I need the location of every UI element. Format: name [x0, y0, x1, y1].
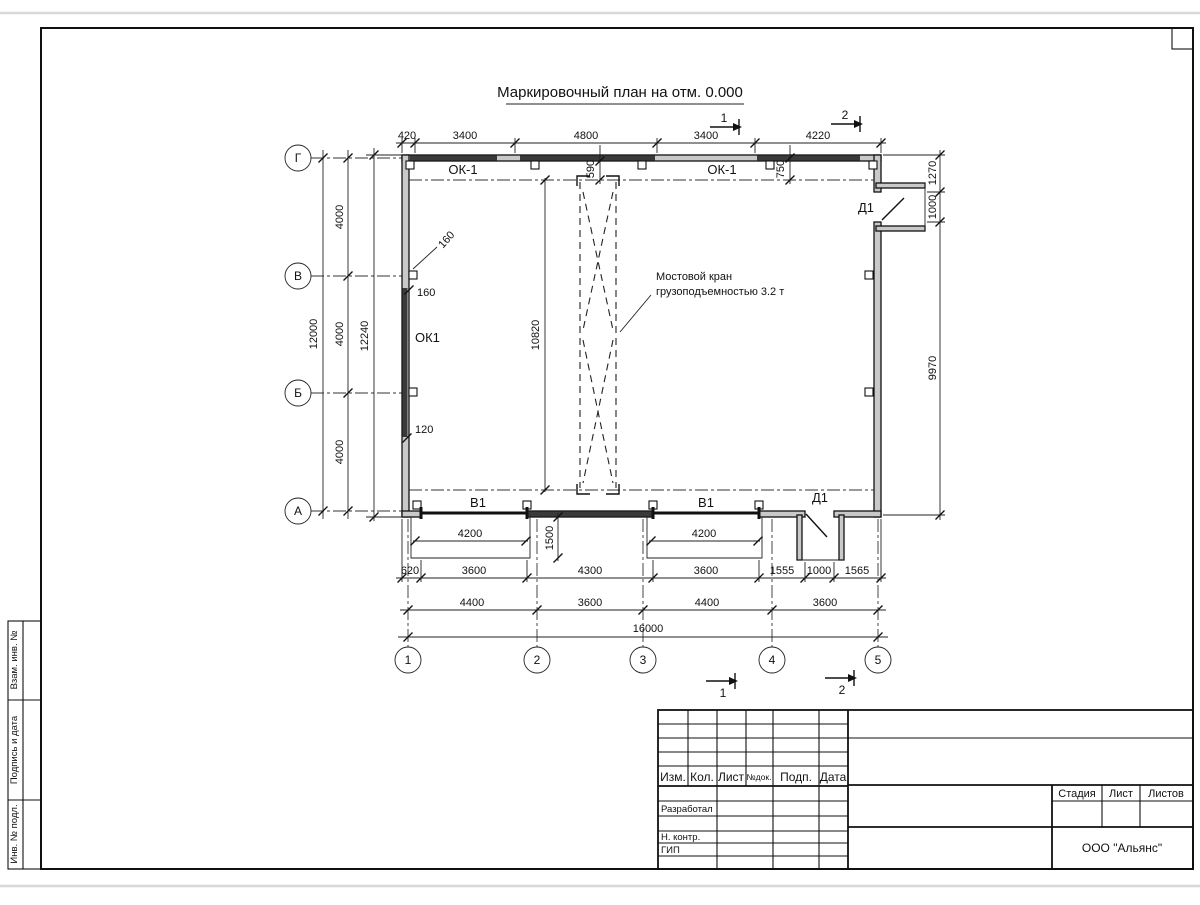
door-swing: [882, 198, 904, 220]
axis-label-5: 5: [875, 653, 882, 667]
dim-b2-4400b: 4400: [695, 597, 719, 609]
crane-note-line2: грузоподъемностью 3.2 т: [656, 286, 784, 298]
tb-col-ndok: №док.: [747, 772, 772, 782]
dim-total-16000: 16000: [633, 623, 664, 635]
wall-bottom-1: [402, 511, 421, 517]
wall-right-lower: [874, 222, 881, 517]
dim-top-420: 420: [398, 130, 416, 142]
dim-rail-750: 750: [775, 160, 787, 178]
tb-role-gip: ГИП: [661, 845, 680, 856]
margin-cell-vzam: Взам. инв. №: [9, 631, 20, 690]
tb-col-list: Лист: [718, 770, 745, 784]
dim-b2-4400a: 4400: [460, 597, 484, 609]
dim-chain-top: 420 3400 4800 3400 4220: [396, 130, 886, 153]
tb-organization: ООО "Альянс": [1082, 841, 1162, 855]
dim-right-9970: 9970: [927, 356, 939, 380]
window-strip: [757, 156, 860, 161]
dim-120: 120: [415, 424, 433, 436]
dim-left-12000: 12000: [308, 319, 320, 350]
window-label-ok1-top-left: ОК-1: [448, 162, 477, 177]
tb-col-kol: Кол.: [690, 770, 714, 784]
dim-b1-1000: 1000: [807, 565, 831, 577]
window-strip: [410, 156, 497, 161]
window-strip-left: [403, 288, 408, 437]
crane-note-line1: Мостовой кран: [656, 271, 732, 283]
door-bottom: Д1: [797, 490, 844, 560]
axis-label-3: 3: [640, 653, 647, 667]
dim-chain-right: 1270 1000 9970: [883, 150, 945, 520]
window-label-ok1-left: ОК1: [415, 330, 440, 345]
building-walls: [402, 155, 881, 517]
door-label-d1-bottom: Д1: [812, 490, 828, 505]
page-title: Маркировочный план на отм. 0.000: [497, 84, 743, 101]
axis-label-1: 1: [405, 653, 412, 667]
dim-gate-4200-left: 4200: [458, 528, 482, 540]
dim-rail-590: 590: [585, 160, 597, 178]
dim-left-4000a: 4000: [334, 205, 346, 229]
dim-top-4220: 4220: [806, 130, 830, 142]
sheet-frame: [41, 28, 1193, 869]
axis-label-a: А: [294, 504, 302, 518]
tb-col-data: Дата: [820, 770, 847, 784]
dim-top-3400b: 3400: [694, 130, 718, 142]
dim-b1-3600a: 3600: [462, 565, 486, 577]
tb-sheet: Лист: [1109, 788, 1133, 800]
section-mark-1-bottom: 1: [720, 686, 727, 700]
gate-label-v1-right: В1: [698, 495, 714, 510]
door-swing: [806, 514, 827, 537]
axis-label-b: Б: [294, 386, 302, 400]
dim-crane-10820: 10820: [530, 320, 542, 351]
tb-stage: Стадия: [1058, 788, 1096, 800]
interior-marks: ОК-1 ОК-1 ОК1 160 160 120: [403, 162, 737, 443]
tb-role-razrabotal: Разработал: [661, 804, 713, 815]
dim-left-12240: 12240: [359, 321, 371, 352]
dim-160-diагonal: 160: [436, 229, 457, 251]
dim-left-4000c: 4000: [334, 440, 346, 464]
section-mark-2-top: 2: [842, 108, 849, 122]
crane: 10820 590 750 Мостовой кран грузоподъемн…: [409, 145, 874, 495]
section-marks: 1 2 1 2: [706, 108, 863, 700]
window-strip: [528, 512, 652, 517]
title-block: Изм. Кол. Лист №док. Подп. Дата Разработ…: [658, 710, 1193, 869]
dim-160-horizontal: 160: [417, 287, 435, 299]
drawing-sheet: Маркировочный план на отм. 0.000 Г В Б А…: [0, 0, 1200, 900]
dim-left-4000b: 4000: [334, 322, 346, 346]
section-mark-2-bottom: 2: [839, 683, 846, 697]
door-right: Д1: [858, 183, 925, 231]
drawing-title: Маркировочный план на отм. 0.000: [497, 84, 744, 104]
axis-label-2: 2: [534, 653, 541, 667]
dim-right-1000: 1000: [927, 195, 939, 219]
tb-col-izm: Изм.: [660, 770, 686, 784]
margin-cell-inv: Инв. № подл.: [9, 804, 20, 863]
door-label-d1-right: Д1: [858, 200, 874, 215]
dim-b1-1555: 1555: [770, 565, 794, 577]
tb-role-nkontr: Н. контр.: [661, 832, 700, 843]
gate-ramps: 4200 4200 1500: [411, 513, 763, 563]
dim-b1-3600b: 3600: [694, 565, 718, 577]
tb-sheets: Листов: [1148, 788, 1184, 800]
dim-gate-4200-right: 4200: [692, 528, 716, 540]
margin-cell-podpis: Подпись и дата: [9, 715, 20, 784]
axis-grid-bottom: 1 2 3 4 5: [395, 519, 891, 673]
dim-top-4800: 4800: [574, 130, 598, 142]
dim-b1-1565: 1565: [845, 565, 869, 577]
window-label-ok1-top-right: ОК-1: [707, 162, 736, 177]
dim-b2-3600a: 3600: [578, 597, 602, 609]
dim-b1-620: 620: [401, 565, 419, 577]
axis-label-4: 4: [769, 653, 776, 667]
paper-edges: [0, 13, 1200, 886]
dim-ramp-1500: 1500: [544, 526, 556, 550]
margin-strip: Взам. инв. № Подпись и дата Инв. № подл.: [8, 621, 41, 869]
dim-chain-left: 12000 4000 4000 4000 12240: [308, 148, 404, 522]
window-strip: [520, 156, 655, 161]
axis-label-v: В: [294, 269, 302, 283]
corner-stamp-box: [1172, 28, 1193, 49]
dim-b2-3600b: 3600: [813, 597, 837, 609]
dim-b1-4300: 4300: [578, 565, 602, 577]
tb-col-podp: Подп.: [780, 770, 812, 784]
crane-leader: [620, 295, 651, 332]
section-mark-1-top: 1: [721, 111, 728, 125]
axis-label-g: Г: [295, 151, 302, 165]
dim-top-3400a: 3400: [453, 130, 477, 142]
dim-right-1270: 1270: [927, 161, 939, 185]
plan-canvas: Маркировочный план на отм. 0.000 Г В Б А…: [0, 0, 1200, 900]
gate-label-v1-left: В1: [470, 495, 486, 510]
